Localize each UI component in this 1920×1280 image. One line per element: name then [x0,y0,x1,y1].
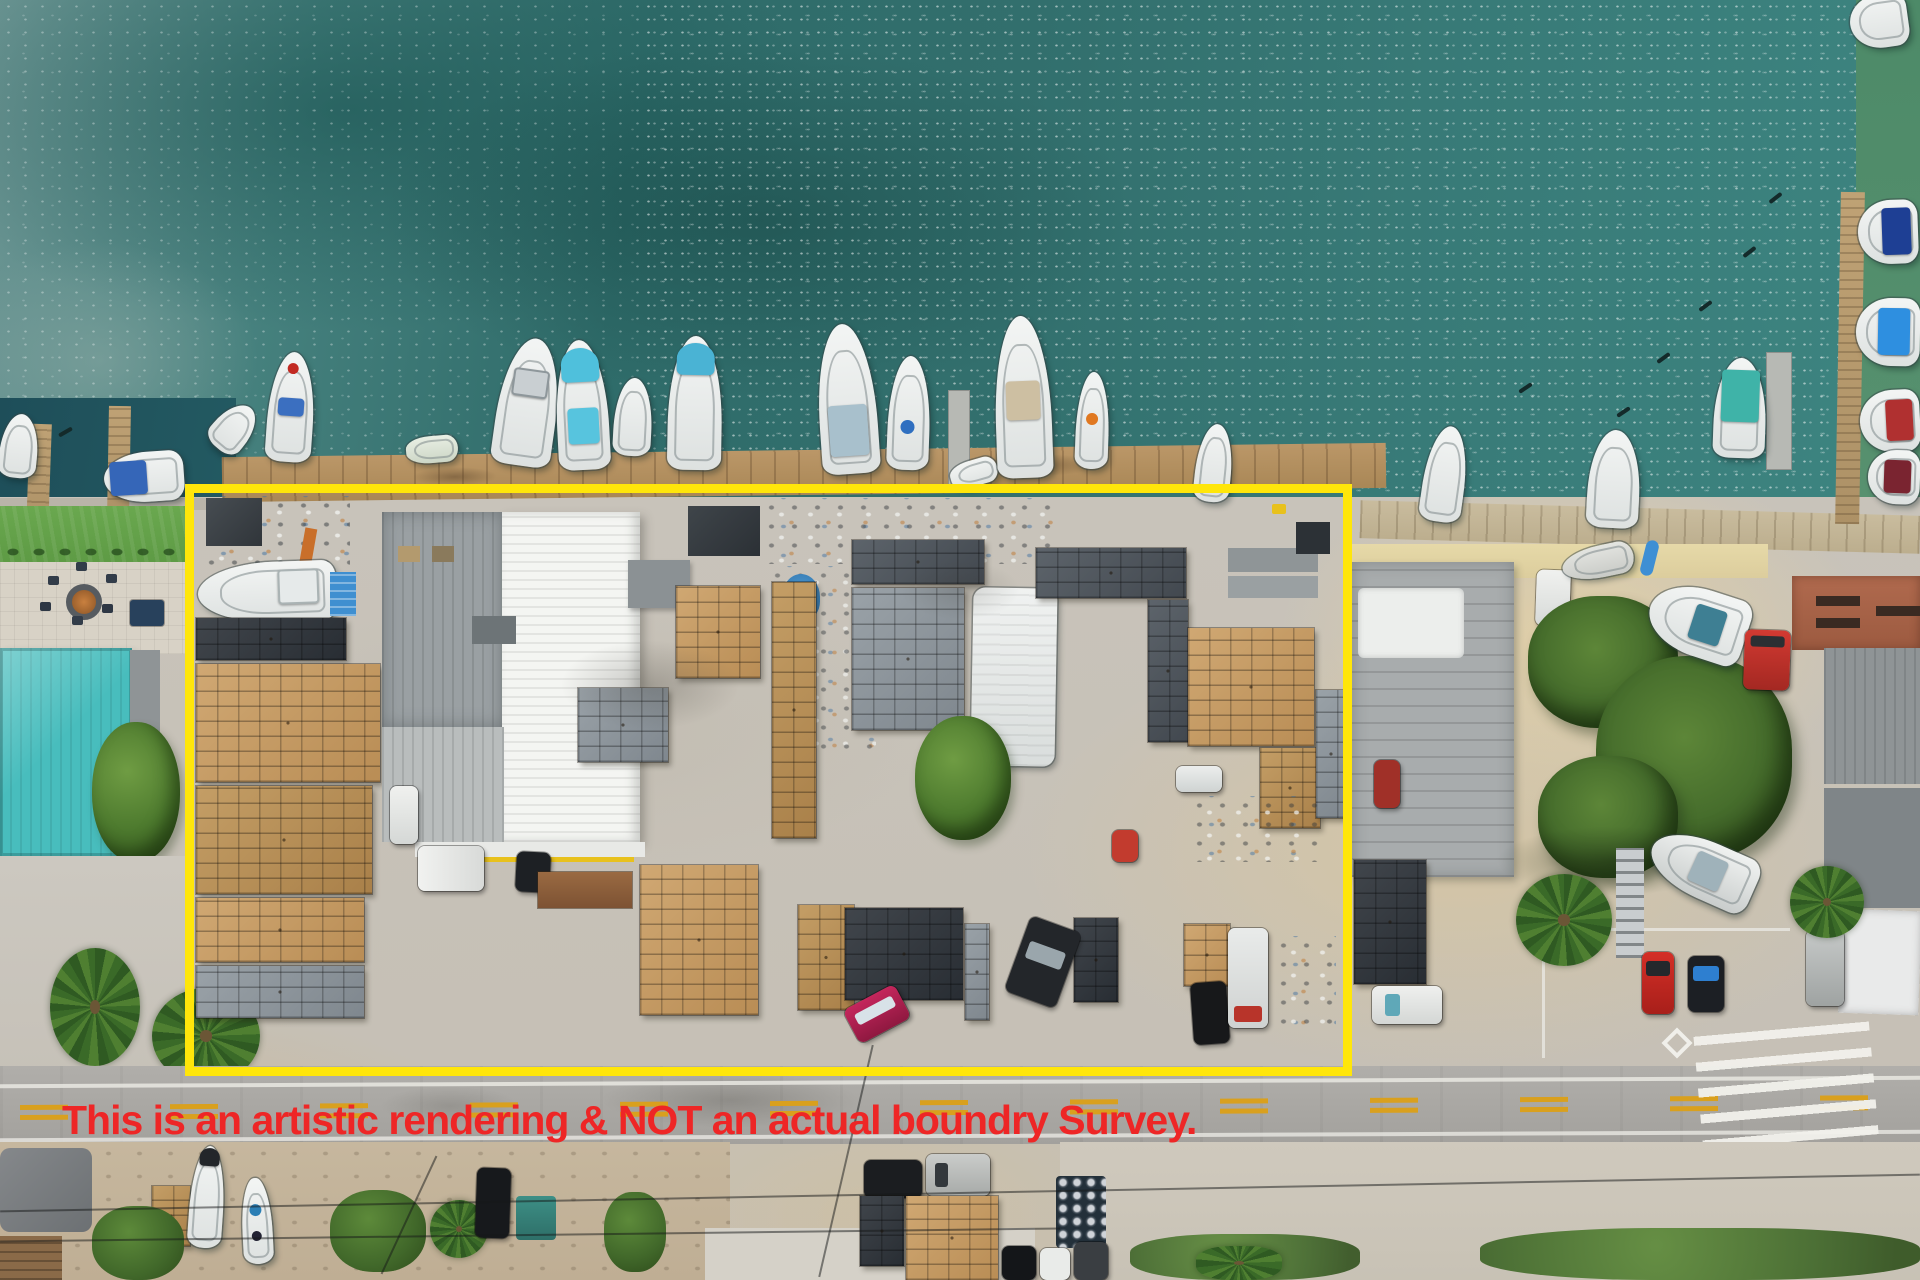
truck-cab [1040,1248,1070,1280]
boat-gear [287,363,299,375]
car-windshield [1693,966,1719,981]
pickup-truck [1688,956,1724,1012]
disclaimer-text: This is an artistic rendering & NOT an a… [62,1097,1196,1144]
right-edge-building [1824,648,1920,784]
palm-fronds [1196,1246,1282,1280]
boat-canopy [1877,307,1910,355]
boat-tower [511,367,551,400]
palm-tree [1790,866,1864,938]
car-windshield [1385,994,1400,1017]
boat-deck [568,407,600,445]
pickup-truck [926,1154,990,1196]
red-truck [1374,760,1400,808]
lobster-trap-stack [906,1196,998,1280]
lobster-trap-stack [1354,860,1426,984]
red-forklift [1743,629,1791,691]
lounge-chairs [130,600,164,626]
pallet-stack [0,1236,62,1280]
red-pickup-truck [1642,952,1674,1014]
boundary-box [185,484,1352,1076]
fire-pit [66,584,102,620]
forklift-mast [1751,635,1784,647]
suv [1002,1246,1036,1280]
boat-console [1686,850,1729,893]
aerial-photo-scene: This is an artistic rendering & NOT an a… [0,0,1920,1280]
brick-pad [1792,576,1920,650]
boat-cover [1885,399,1913,441]
shrub-row [0,544,186,560]
barrel-cluster [1056,1176,1106,1248]
boat-canopy [1881,207,1911,255]
boat-cover [1883,459,1911,493]
crosswalk [1693,1021,1878,1150]
pickup-truck [1372,986,1442,1024]
lumber-marks [1816,596,1860,606]
neighbor-building-white-roof [1358,588,1464,658]
boat-canopy [278,397,305,416]
palm-tree [1516,874,1612,966]
boat-bow [199,1147,221,1167]
patio-chairs [48,576,59,585]
boat-console [1687,603,1728,647]
boat-marking [1086,413,1098,425]
tree [92,722,180,862]
boat-canopy [109,460,148,496]
floating-dock [1766,352,1792,470]
ladder-rack [1616,848,1644,958]
trailer [1074,1242,1108,1280]
boat-canopy [560,347,599,383]
car-windshield [935,1163,948,1187]
tarp-pile [0,1148,92,1232]
boat-marking [901,420,915,434]
boat-canopy [1721,369,1760,422]
boat-bow-cover [676,342,715,375]
bush [92,1206,184,1280]
boat-deck [828,404,870,458]
vegetation [1480,1228,1920,1280]
boat-deck-box [1006,380,1041,420]
palm-tree [50,948,140,1066]
pickup-truck [1806,930,1844,1006]
car-roof [1646,961,1669,976]
